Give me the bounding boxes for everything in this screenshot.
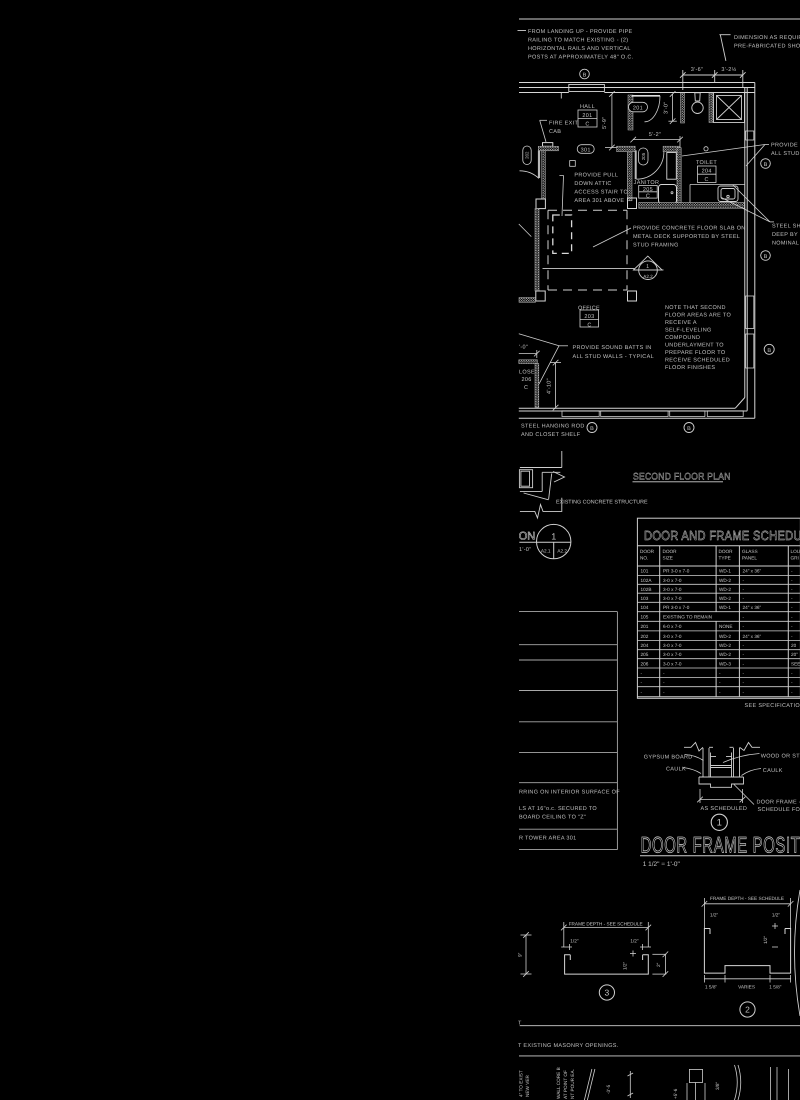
svg-text:AREA 301 ABOVE: AREA 301 ABOVE <box>574 198 624 204</box>
svg-text:103: 103 <box>641 596 649 601</box>
svg-text:3'-0": 3'-0" <box>664 101 670 114</box>
svg-text:WD-1: WD-1 <box>719 569 731 574</box>
svg-text:RECEIVE A: RECEIVE A <box>665 320 697 326</box>
svg-text:B: B <box>590 426 594 432</box>
svg-text:AS SCHEDULED: AS SCHEDULED <box>701 806 748 812</box>
svg-text:1 1/2" = 1'-0": 1 1/2" = 1'-0" <box>643 861 681 868</box>
svg-text:202: 202 <box>525 151 530 159</box>
svg-text:4'-10": 4'-10" <box>547 378 553 394</box>
svg-text:GYPSUM BOARD: GYPSUM BOARD <box>644 755 693 761</box>
svg-text:204: 204 <box>702 169 712 175</box>
svg-text:TOILET: TOILET <box>696 160 717 166</box>
svg-text:WD-3: WD-3 <box>719 662 731 667</box>
svg-text:WD-2: WD-2 <box>719 652 731 657</box>
svg-text:ALL STUD: ALL STUD <box>771 151 800 157</box>
svg-text:PANEL: PANEL <box>742 556 757 561</box>
svg-text:RECEIVE SCHEDULED: RECEIVE SCHEDULED <box>665 358 730 364</box>
svg-text:DOOR FRAME -: DOOR FRAME - <box>757 800 800 806</box>
svg-text:C: C <box>705 177 709 183</box>
svg-text:FLOOR AREAS ARE TO: FLOOR AREAS ARE TO <box>665 313 731 319</box>
svg-text:204: 204 <box>641 643 649 648</box>
svg-text:TYPE: TYPE <box>719 556 731 561</box>
svg-text:WD-2: WD-2 <box>719 578 731 583</box>
svg-text:PROVIDE SOUND BATTS IN: PROVIDE SOUND BATTS IN <box>573 345 652 351</box>
svg-text:A2.2: A2.2 <box>557 549 567 554</box>
svg-text:SCHEDULE FOR: SCHEDULE FOR <box>758 807 800 813</box>
svg-text:B: B <box>687 426 691 432</box>
svg-text:5'-2": 5'-2" <box>649 132 662 138</box>
svg-text:-3'-5: -3'-5 <box>606 1084 611 1094</box>
svg-text:1'-0": 1'-0" <box>519 547 532 553</box>
svg-text:1/2": 1/2" <box>623 961 628 970</box>
svg-text:1/2": 1/2" <box>630 939 639 944</box>
svg-text:C: C <box>524 385 528 391</box>
svg-text:20: 20 <box>791 643 797 648</box>
svg-text:3'-6": 3'-6" <box>691 67 704 73</box>
svg-text:C: C <box>585 122 589 128</box>
svg-text:24" x 36": 24" x 36" <box>743 569 762 574</box>
svg-text:STUD FRAMING: STUD FRAMING <box>633 243 679 249</box>
svg-text:VARIES: VARIES <box>738 985 755 990</box>
svg-text:A2.1: A2.1 <box>541 549 551 554</box>
svg-text:DOOR: DOOR <box>719 549 734 554</box>
svg-text:3: 3 <box>605 988 610 998</box>
svg-text:C: C <box>646 193 650 199</box>
svg-text:NT POUR EA.: NT POUR EA. <box>570 1069 575 1099</box>
svg-text:SEE SPECIFICATIONS: SEE SPECIFICATIONS <box>745 703 800 709</box>
svg-text:A2.2: A2.2 <box>643 274 653 279</box>
svg-text:3-0 x 7-0: 3-0 x 7-0 <box>663 652 682 657</box>
svg-text:NOMINAL 7: NOMINAL 7 <box>772 241 800 247</box>
svg-text:1/2": 1/2" <box>570 939 579 944</box>
svg-text:SELF-LEVELING: SELF-LEVELING <box>665 328 712 334</box>
svg-text:ALL STUD WALLS - TYPICAL: ALL STUD WALLS - TYPICAL <box>573 354 654 360</box>
svg-text:HALL: HALL <box>580 104 595 110</box>
svg-text:1/2": 1/2" <box>710 913 719 918</box>
svg-text:B: B <box>767 348 771 354</box>
svg-text:DOOR AND FRAME SCHEDULE: DOOR AND FRAME SCHEDULE <box>644 528 800 543</box>
svg-text:SEE: SEE <box>791 662 800 667</box>
svg-text:B: B <box>764 254 768 260</box>
svg-text:B: B <box>764 162 768 168</box>
svg-text:METAL DECK SUPPORTED BY STEEL: METAL DECK SUPPORTED BY STEEL <box>633 234 740 240</box>
svg-text:NONE: NONE <box>719 624 733 629</box>
svg-text:20": 20" <box>791 652 798 657</box>
svg-text:AND CLOSET SHELF: AND CLOSET SHELF <box>521 432 581 438</box>
svg-text:WD-2: WD-2 <box>719 634 731 639</box>
svg-text:CAB: CAB <box>549 129 561 135</box>
svg-text:WALL CORE B: WALL CORE B <box>556 1067 561 1099</box>
svg-text:SECOND FLOOR PLAN: SECOND FLOOR PLAN <box>633 472 731 483</box>
svg-text:GLASS: GLASS <box>742 549 758 554</box>
svg-text:PROVIDE PULL: PROVIDE PULL <box>574 173 618 179</box>
svg-text:201: 201 <box>582 113 592 119</box>
svg-text:3/8": 3/8" <box>715 1081 720 1090</box>
svg-text:206: 206 <box>641 662 649 667</box>
svg-text:STEEL SH: STEEL SH <box>772 224 800 230</box>
svg-text:R TOWER AREA 301: R TOWER AREA 301 <box>519 836 577 842</box>
svg-text:NO.: NO. <box>640 556 648 561</box>
svg-text:3-0 x 7-0: 3-0 x 7-0 <box>663 587 682 592</box>
svg-text:EXISTING TO REMAIN: EXISTING TO REMAIN <box>663 615 712 620</box>
svg-text:DOOR: DOOR <box>640 549 655 554</box>
svg-text:DOWN ATTIC: DOWN ATTIC <box>574 181 611 187</box>
svg-text:102A: 102A <box>641 578 653 583</box>
svg-text:FRAME DEPTH - SEE SCHEDULE: FRAME DEPTH - SEE SCHEDULE <box>710 896 784 901</box>
svg-text:1: 1 <box>717 818 722 829</box>
svg-text:COMPOUND: COMPOUND <box>665 335 700 341</box>
svg-text:3-0 x 7-0: 3-0 x 7-0 <box>663 634 682 639</box>
svg-text:PROVIDE CONCRETE FLOOR SLAB ON: PROVIDE CONCRETE FLOOR SLAB ON <box>633 226 746 232</box>
svg-text:WD-1: WD-1 <box>719 605 731 610</box>
svg-text:ACCESS STAIR TO: ACCESS STAIR TO <box>574 190 628 196</box>
svg-text:C: C <box>587 323 591 329</box>
svg-text:1 5/8": 1 5/8" <box>769 985 781 990</box>
svg-text:DIMENSION AS REQUIRED: DIMENSION AS REQUIRED <box>734 35 800 41</box>
svg-text:BOARD CEILING TO "Z": BOARD CEILING TO "Z" <box>519 815 586 821</box>
svg-text:202: 202 <box>641 634 649 639</box>
svg-text:SIZE: SIZE <box>663 556 673 561</box>
svg-text:3-0 x 7-0: 3-0 x 7-0 <box>663 643 682 648</box>
svg-text:PR 3-0 x 7-0: PR 3-0 x 7-0 <box>663 605 690 610</box>
svg-text:2": 2" <box>656 962 661 967</box>
svg-text:UNDERLAYMENT TO: UNDERLAYMENT TO <box>665 343 724 349</box>
svg-text:WD-2: WD-2 <box>719 587 731 592</box>
svg-text:FROM LANDING UP - PROVIDE PIPE: FROM LANDING UP - PROVIDE PIPE <box>528 29 633 35</box>
svg-text:WD-2: WD-2 <box>719 643 731 648</box>
svg-text:9": 9" <box>518 952 523 957</box>
svg-text:+5'-6: +5'-6 <box>673 1088 678 1099</box>
svg-text:3'-2½: 3'-2½ <box>721 67 736 73</box>
svg-text:2: 2 <box>745 1005 750 1015</box>
svg-text:HORIZONTAL RAILS AND VERTICAL: HORIZONTAL RAILS AND VERTICAL <box>528 46 631 52</box>
svg-text:'-0": '-0" <box>519 345 528 351</box>
svg-text:AT POINT OF: AT POINT OF <box>563 1070 568 1099</box>
svg-text:GRI: GRI <box>791 556 799 561</box>
svg-text:1/2": 1/2" <box>763 935 768 944</box>
svg-text:LOU: LOU <box>791 549 800 554</box>
svg-text:NOTE THAT SECOND: NOTE THAT SECOND <box>665 305 726 311</box>
svg-text:FIRE EXIT: FIRE EXIT <box>549 121 578 127</box>
svg-text:WD-2: WD-2 <box>719 596 731 601</box>
svg-text:205: 205 <box>643 187 653 193</box>
svg-text:24" x 36": 24" x 36" <box>743 605 762 610</box>
svg-text:WOOD OR STE: WOOD OR STE <box>761 754 800 760</box>
svg-text:DEEP BY: DEEP BY <box>772 232 798 238</box>
svg-text:DOOR: DOOR <box>663 549 678 554</box>
svg-text:101: 101 <box>641 569 649 574</box>
svg-text:3-0 x 7-0: 3-0 x 7-0 <box>663 596 682 601</box>
svg-text:FLOOR FINISHES: FLOOR FINISHES <box>665 365 715 371</box>
svg-text:PROVIDE S: PROVIDE S <box>771 143 800 149</box>
svg-text:OFFICE: OFFICE <box>578 306 600 312</box>
svg-text:RAILING TO MATCH EXISTING - (2: RAILING TO MATCH EXISTING - (2) <box>528 38 628 44</box>
svg-text:1 5/8": 1 5/8" <box>705 985 717 990</box>
svg-text:5'-9": 5'-9" <box>602 116 608 129</box>
svg-text:B: B <box>583 72 587 78</box>
svg-text:EXISTING CONCRETE STRUCTURE: EXISTING CONCRETE STRUCTURE <box>556 500 648 506</box>
svg-text:DOOR FRAME POSITION: DOOR FRAME POSITION <box>641 833 800 858</box>
svg-text:4" TO EXIST: 4" TO EXIST <box>519 1070 524 1097</box>
svg-text:201: 201 <box>641 624 649 629</box>
svg-text:FRAME DEPTH - SEE SCHEDULE: FRAME DEPTH - SEE SCHEDULE <box>569 922 643 927</box>
svg-text:1/2": 1/2" <box>772 913 781 918</box>
svg-text:PRE-FABRICATED SHOWE: PRE-FABRICATED SHOWE <box>734 44 800 50</box>
svg-text:206: 206 <box>522 377 532 383</box>
svg-text:LS AT 16"o.c. SECURED TO: LS AT 16"o.c. SECURED TO <box>519 806 597 812</box>
svg-text:102B: 102B <box>641 587 652 592</box>
svg-text:3-0 x 7-0: 3-0 x 7-0 <box>663 578 682 583</box>
svg-text:201: 201 <box>633 105 643 111</box>
svg-text:POSTS AT APPROXIMATELY 48" O.C: POSTS AT APPROXIMATELY 48" O.C. <box>528 55 634 61</box>
svg-text:301: 301 <box>581 147 591 153</box>
svg-text:205: 205 <box>641 652 649 657</box>
svg-text:NEW VER: NEW VER <box>525 1075 530 1097</box>
svg-text:PR 3-0 x 7-0: PR 3-0 x 7-0 <box>663 569 690 574</box>
svg-text:203: 203 <box>584 314 594 320</box>
svg-text:105: 105 <box>641 615 649 620</box>
svg-text:T EXISTING MASONRY OPENINGS.: T EXISTING MASONRY OPENINGS. <box>518 1043 619 1049</box>
svg-text:RRING ON INTERIOR SURFACE OF: RRING ON INTERIOR SURFACE OF <box>519 790 620 796</box>
svg-text:104: 104 <box>641 605 649 610</box>
svg-text:PREPARE FLOOR TO: PREPARE FLOOR TO <box>665 350 726 356</box>
svg-text:3-0 x 7-0: 3-0 x 7-0 <box>663 662 682 667</box>
svg-text:1: 1 <box>646 264 649 270</box>
svg-text:6-0 x 7-0: 6-0 x 7-0 <box>663 624 682 629</box>
svg-text:STEEL HANGING ROD: STEEL HANGING ROD <box>521 424 585 430</box>
svg-text:CAULK: CAULK <box>763 768 783 774</box>
svg-text:1: 1 <box>551 532 556 542</box>
svg-text:ON: ON <box>519 531 536 543</box>
svg-text:24" x 36": 24" x 36" <box>743 634 762 639</box>
svg-text:205: 205 <box>641 152 646 160</box>
